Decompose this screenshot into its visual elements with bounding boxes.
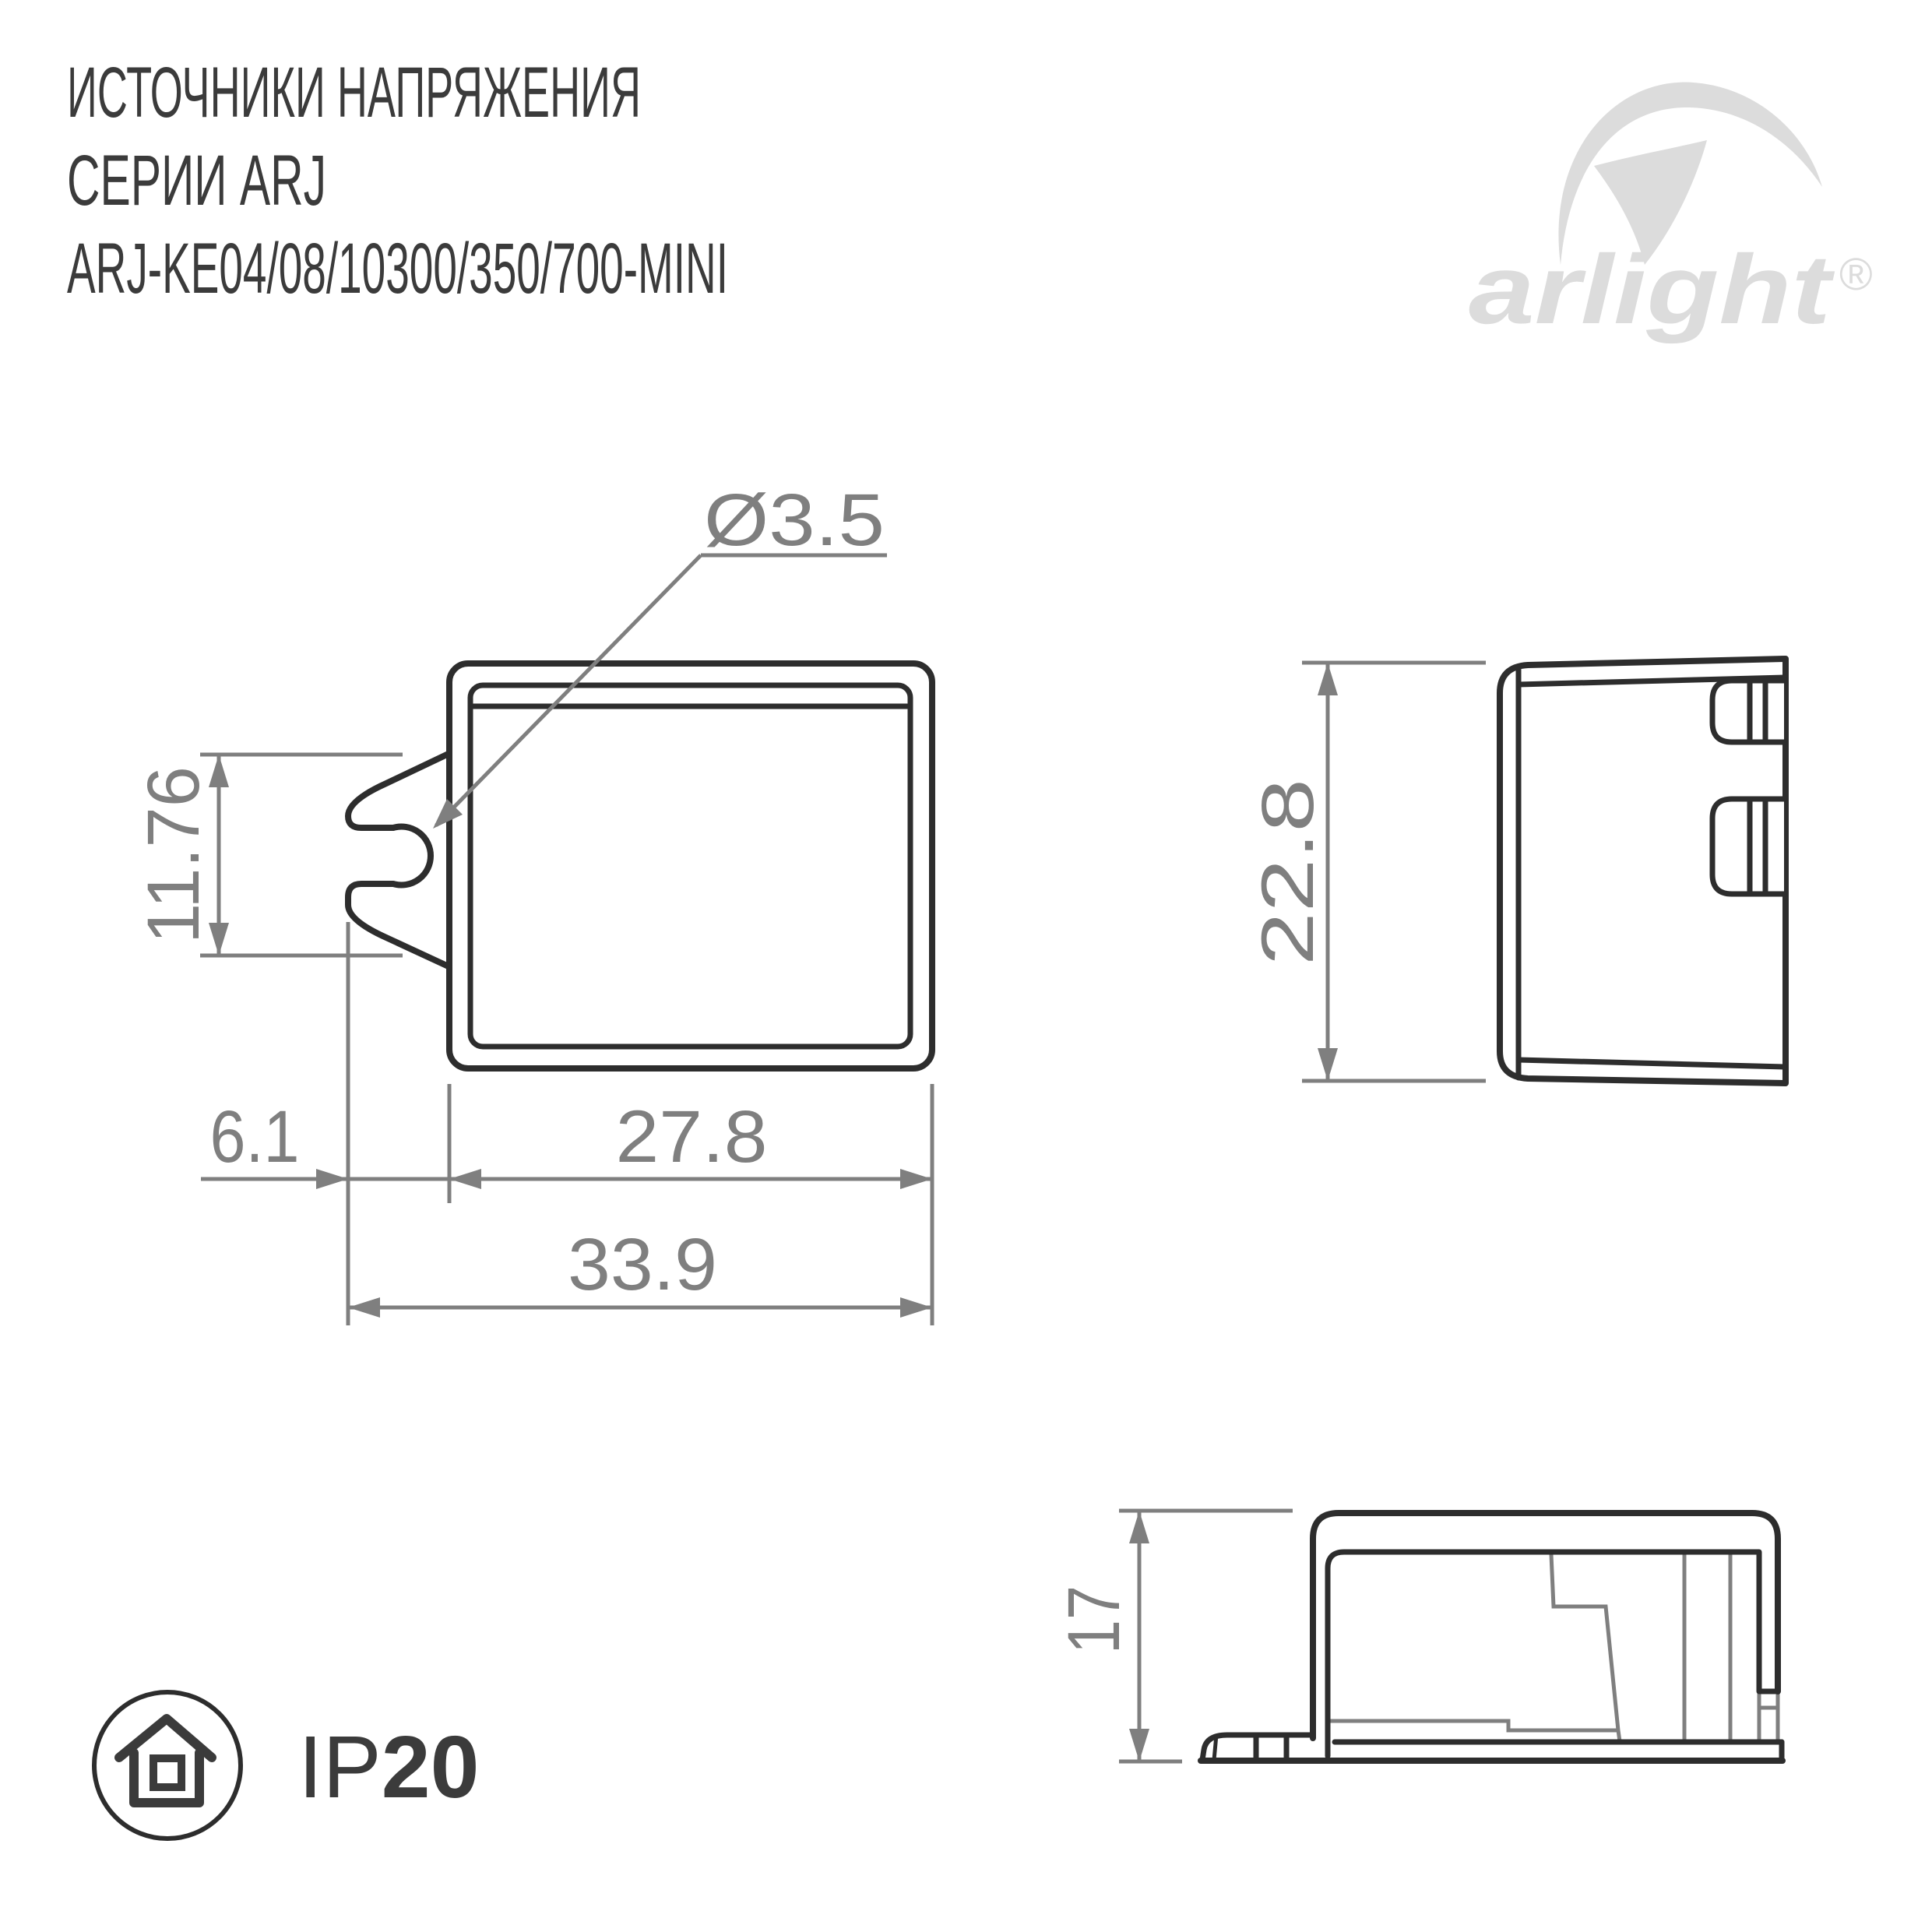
- side-view: [1500, 659, 1786, 1083]
- arrow-left-icon: [449, 1169, 481, 1189]
- dim-clip-height: 11.76: [132, 766, 215, 944]
- arrow-up-icon: [1318, 663, 1338, 695]
- technical-drawing-sheet: ИСТОЧНИКИ НАПРЯЖЕНИЯ СЕРИИ ARJ ARJ-KE04/…: [0, 0, 1932, 1932]
- title-block: ИСТОЧНИКИ НАПРЯЖЕНИЯ СЕРИИ ARJ ARJ-KE04/…: [67, 53, 728, 308]
- dim-overall-width: 33.9: [568, 1223, 717, 1306]
- dim-hole-diameter: Ø3.5: [704, 479, 885, 561]
- arrow-down-icon: [1129, 1729, 1149, 1761]
- brand-logo: arlight ®: [1469, 83, 1873, 344]
- profile-view-dimensions: 17: [1053, 1511, 1293, 1761]
- arrow-down-icon: [1318, 1048, 1338, 1081]
- front-view: [348, 663, 932, 1068]
- arrow-right-icon: [316, 1169, 348, 1189]
- page-title-line1: ИСТОЧНИКИ НАПРЯЖЕНИЯ: [67, 53, 641, 132]
- dim-clip-offset: 6.1: [210, 1096, 300, 1178]
- front-view-mounting-clip: [348, 753, 450, 967]
- side-view-dimensions: 22.8: [1247, 663, 1486, 1081]
- arrow-left-icon: [348, 1297, 380, 1318]
- house-window-icon: [153, 1758, 181, 1787]
- registered-trademark-icon: ®: [1839, 249, 1873, 300]
- arrow-up-icon: [1129, 1511, 1149, 1543]
- page-title-line2: СЕРИИ ARJ: [67, 141, 326, 220]
- page-title-line3: ARJ-KE04/08/10300/350/700-MINI: [67, 229, 728, 308]
- ip-rating-prefix: IP: [298, 1718, 382, 1816]
- profile-view: [1201, 1513, 1782, 1761]
- logo-brand-text: arlight: [1469, 234, 1835, 344]
- dim-body-height: 22.8: [1247, 779, 1329, 966]
- ip-rating-value: 20: [382, 1718, 480, 1816]
- arrow-right-icon: [900, 1169, 932, 1189]
- dim-profile-height: 17: [1053, 1585, 1135, 1654]
- flange-inner-line: [1214, 1735, 1216, 1760]
- ip-rating: IP20: [94, 1692, 479, 1839]
- arrow-right-icon: [900, 1297, 932, 1318]
- ip-rating-label: IP20: [298, 1718, 479, 1816]
- front-view-outer-case: [449, 663, 932, 1068]
- dim-body-width: 27.8: [616, 1096, 768, 1178]
